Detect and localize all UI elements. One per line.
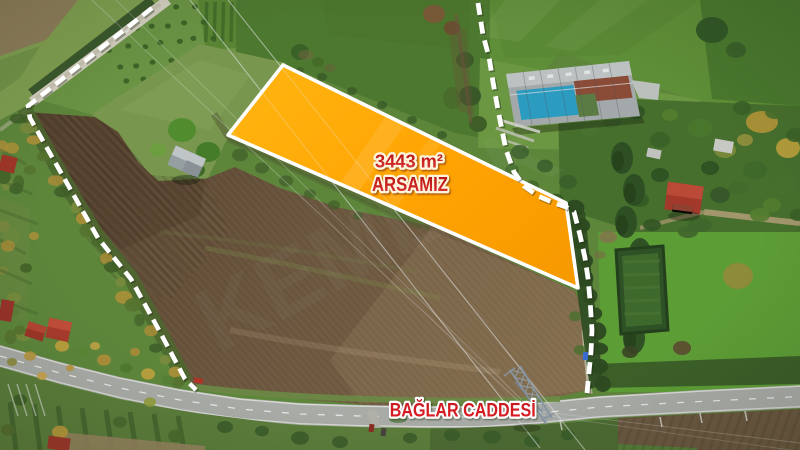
- svg-text:ARSAMIZ: ARSAMIZ: [372, 174, 448, 196]
- svg-text:3443 m²: 3443 m²: [375, 151, 443, 172]
- svg-text:BAĞLAR CADDESİ: BAĞLAR CADDESİ: [390, 398, 536, 422]
